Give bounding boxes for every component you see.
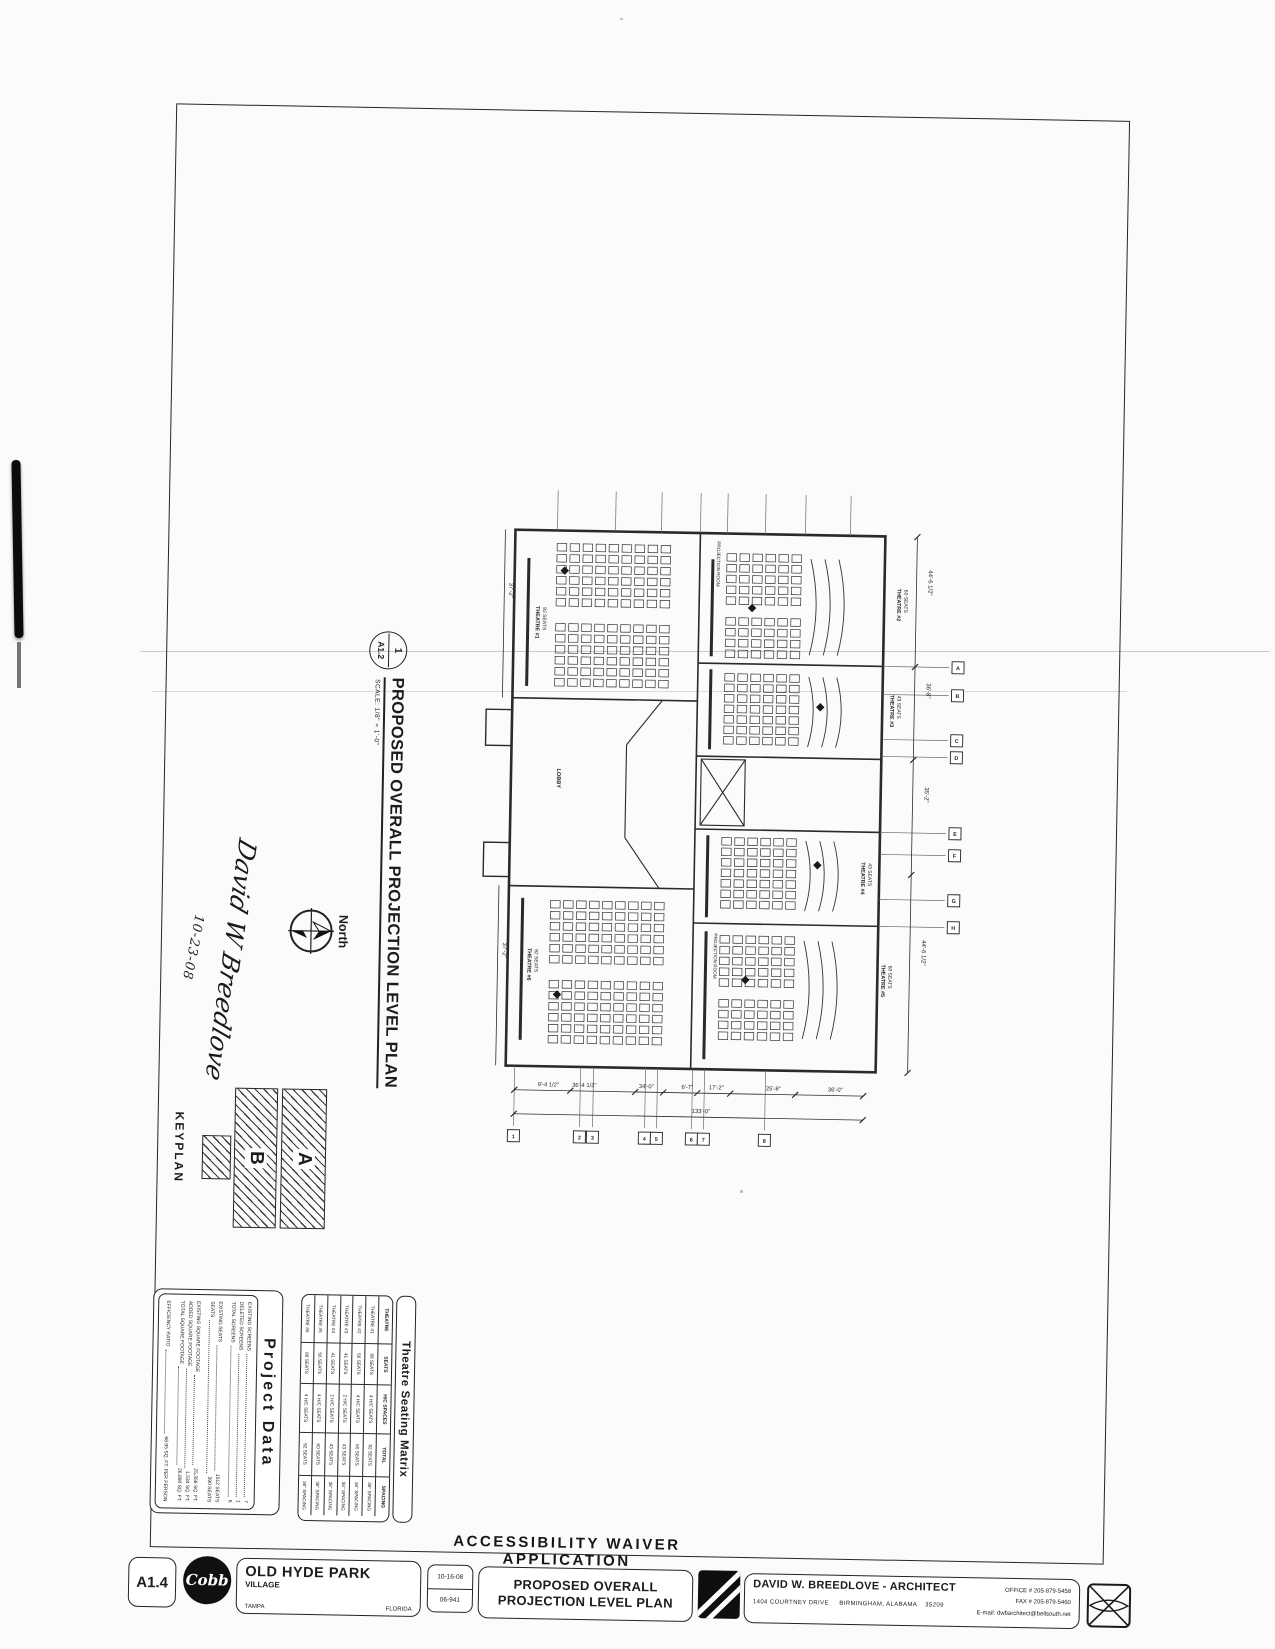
seat [732, 968, 742, 976]
seat [602, 923, 612, 931]
matrix-cell: 88 SEATS [301, 1342, 315, 1383]
seat [569, 577, 579, 585]
seat [766, 565, 776, 573]
seat [633, 658, 643, 666]
seat [783, 1022, 793, 1030]
seat [745, 968, 755, 976]
project-data-label: EFFICIENCY RATIO [164, 1300, 170, 1346]
cobb-logo-text: Cobb [186, 1571, 229, 1590]
keyplan-label: KEYPLAN [171, 1111, 187, 1203]
seat [569, 624, 579, 632]
seat [581, 668, 591, 676]
seat [787, 839, 797, 847]
seat [615, 935, 625, 943]
seat [747, 859, 757, 867]
seat [757, 1033, 767, 1041]
curved-seat-row [808, 677, 814, 747]
seat [582, 577, 592, 585]
email: E-mail: dwbarchitect@bellsouth.net [976, 1608, 1070, 1621]
seating-matrix-title: Theatre Seating Matrix [392, 1296, 416, 1523]
seat [601, 1003, 611, 1011]
seat [720, 946, 730, 954]
dim-line [908, 537, 918, 1073]
project-data-rows: EXISTING SCREENS7DELETED SCREENS1TOTAL S… [154, 1293, 258, 1510]
seat [633, 680, 643, 688]
client-sub: VILLAGE [245, 1580, 412, 1592]
seat [734, 859, 744, 867]
project-data-value: 25,356 SQ. FT. [191, 1468, 197, 1502]
seat [722, 848, 732, 856]
seat [734, 890, 744, 898]
seat [734, 880, 744, 888]
seat [654, 913, 664, 921]
seat [590, 901, 600, 909]
seat [575, 992, 585, 1000]
project-data-value: 26,890 SQ. FT. [175, 1468, 181, 1502]
seat [777, 651, 787, 659]
plan-text: G [952, 899, 956, 905]
seat [773, 880, 783, 888]
association-logo [1085, 1582, 1132, 1629]
sheet-content: 9'-4 1/2"36'-4 1/2"34'-0"6'-7"17'-2"25'-… [0, 0, 1275, 1649]
seat [576, 912, 586, 920]
seat [548, 1013, 558, 1021]
seat [750, 716, 760, 724]
seat [659, 680, 669, 688]
seat [760, 880, 770, 888]
seat [568, 679, 578, 687]
seat [600, 1036, 610, 1044]
seat [583, 555, 593, 563]
curved-seat-row [819, 841, 825, 911]
seat [737, 726, 747, 734]
seat [724, 705, 734, 713]
seat [726, 597, 736, 605]
seat [640, 982, 650, 990]
seat [771, 980, 781, 988]
dim-line [514, 1114, 863, 1120]
seat [647, 600, 657, 608]
seat [652, 1037, 662, 1045]
seat [752, 586, 762, 594]
project-data-label: DELETED SCREENS [237, 1302, 243, 1351]
seat [550, 911, 560, 919]
seat [648, 567, 658, 575]
seat [738, 684, 748, 692]
plan-text: H [951, 926, 955, 932]
seat [594, 657, 604, 665]
signature-date-wrap: 10-23-08 [206, 916, 207, 917]
seat [555, 645, 565, 653]
seat [720, 957, 730, 965]
seat [735, 848, 745, 856]
seat [603, 901, 613, 909]
seat [628, 957, 638, 965]
seat [661, 567, 671, 575]
plan-text: PROJECTION ROOM [712, 933, 718, 978]
seat [648, 545, 658, 553]
sheet-title-line2: PROJECTION LEVEL PLAN [498, 1593, 673, 1612]
curved-seat-row [836, 678, 842, 748]
matrix-cell: 4 H/C SEATS [300, 1383, 314, 1432]
project-data-label: SEATS [208, 1301, 214, 1317]
seat [734, 901, 744, 909]
seat [776, 727, 786, 735]
seat [732, 979, 742, 987]
seat [757, 1022, 767, 1030]
seat [613, 1015, 623, 1023]
dotted-leader [185, 1369, 188, 1468]
detail-bubble: 1 A1.2 [369, 631, 408, 670]
seat [774, 849, 784, 857]
seat [789, 696, 799, 704]
seat [724, 726, 734, 734]
grid-line [880, 854, 946, 855]
grid-line [882, 739, 948, 740]
seat [602, 912, 612, 920]
seat [582, 588, 592, 596]
seat [587, 1025, 597, 1033]
seat [748, 838, 758, 846]
dotted-leader [244, 1354, 248, 1497]
seat [732, 1011, 742, 1019]
seat [731, 1021, 741, 1029]
seat [607, 668, 617, 676]
seat [661, 556, 671, 564]
plan-text: 133'-0" [691, 1109, 710, 1115]
project-data-title: Project Data [254, 1291, 282, 1514]
seat [725, 674, 735, 682]
seat [646, 636, 656, 644]
seat [732, 1000, 742, 1008]
seat [751, 674, 761, 682]
curved-seat-row [833, 842, 839, 912]
seat [626, 1026, 636, 1034]
seat [548, 1035, 558, 1043]
dotted-leader [193, 1375, 196, 1465]
grid-line [657, 1068, 658, 1128]
grid-line [557, 490, 558, 530]
seat [641, 946, 651, 954]
seat [751, 685, 761, 693]
seat [581, 657, 591, 665]
seat [654, 924, 664, 932]
seat [587, 1014, 597, 1022]
curved-seat-row [809, 559, 817, 655]
seat [570, 566, 580, 574]
plan-text: 34'-0" [639, 1084, 654, 1090]
seat [628, 946, 638, 954]
seat [549, 1002, 559, 1010]
seat [576, 956, 586, 964]
seat [721, 900, 731, 908]
project-data-wrap: Project Data EXISTING SCREENS7DELETED SC… [149, 1288, 283, 1515]
grid-line [765, 494, 766, 534]
grid-line [704, 1069, 705, 1129]
seat [783, 1033, 793, 1041]
seat [750, 706, 760, 714]
seat [641, 924, 651, 932]
seat [614, 993, 624, 1001]
plan-text: A [956, 666, 960, 672]
plan-text: 6 [690, 1137, 693, 1143]
seat [555, 634, 565, 642]
exit-diamond-icon [816, 703, 824, 711]
dotted-leader [164, 1349, 167, 1433]
matrix-cell: 2 H/C SEATS [338, 1384, 352, 1433]
plan-text: 17'-2" [709, 1085, 724, 1091]
seat [641, 935, 651, 943]
seat [745, 1000, 755, 1008]
project-data-row: EXISTING SCREENS7 [243, 1302, 252, 1503]
plan-text: 36'-0" [828, 1087, 843, 1093]
seat [563, 956, 573, 964]
seat [576, 923, 586, 931]
seat [785, 937, 795, 945]
seat [628, 924, 638, 932]
seat [659, 636, 669, 644]
seat [600, 1014, 610, 1022]
seat [652, 1015, 662, 1023]
matrix-cell: 36" SPACING [324, 1475, 338, 1515]
seat [634, 589, 644, 597]
matrix-cell: 60 SEATS [312, 1432, 326, 1475]
seat [718, 1032, 728, 1040]
seat [648, 556, 658, 564]
seat [758, 1000, 768, 1008]
seat [784, 1001, 794, 1009]
seat [721, 869, 731, 877]
seat [594, 668, 604, 676]
seat [569, 599, 579, 607]
seat [602, 956, 612, 964]
project-data-value: 390 SEATS [205, 1476, 211, 1502]
seat [583, 566, 593, 574]
curved-seat-row [837, 560, 845, 656]
seat [735, 838, 745, 846]
seat [556, 576, 566, 584]
seat [752, 618, 762, 626]
matrix-cell: 56 SEATS [314, 1342, 328, 1383]
seat [635, 567, 645, 575]
architect-logo [698, 1570, 741, 1619]
seat [581, 646, 591, 654]
seat [574, 1036, 584, 1044]
seat [763, 695, 773, 703]
seat [745, 1011, 755, 1019]
seat [786, 870, 796, 878]
seat [588, 981, 598, 989]
seat [634, 578, 644, 586]
seat [620, 669, 630, 677]
matrix-cell: THEATRE #1 [366, 1296, 380, 1343]
seat [575, 981, 585, 989]
seat [564, 901, 574, 909]
project-data-value: 1512 SEATS [213, 1474, 219, 1503]
seat [763, 716, 773, 724]
seat [722, 838, 732, 846]
seat [760, 859, 770, 867]
grid-line [879, 899, 945, 900]
exit-diamond-icon [560, 566, 568, 574]
seat [758, 1011, 768, 1019]
seat [773, 901, 783, 909]
matrix-cell: THEATRE #3 [340, 1296, 354, 1343]
seat [747, 869, 757, 877]
plan-text: 37'-2" [501, 942, 507, 957]
seat [790, 685, 800, 693]
seat [646, 669, 656, 677]
seat [562, 981, 572, 989]
seat [635, 545, 645, 553]
seat [724, 737, 734, 745]
seat [752, 597, 762, 605]
seat [789, 738, 799, 746]
date-job-box: 10-16-08 06-941 [427, 1564, 474, 1613]
seat [569, 588, 579, 596]
seat [589, 934, 599, 942]
seat [784, 1011, 794, 1019]
seat [615, 946, 625, 954]
seat [786, 902, 796, 910]
seat [734, 869, 744, 877]
seat [562, 992, 572, 1000]
seat [791, 630, 801, 638]
seat [582, 624, 592, 632]
seat [739, 618, 749, 626]
seat [550, 955, 560, 963]
seat [747, 901, 757, 909]
matrix-cell: 92 SEATS [299, 1432, 313, 1475]
seat [595, 599, 605, 607]
seat [639, 1026, 649, 1034]
seat [620, 680, 630, 688]
seat [594, 646, 604, 654]
curved-seat-row [805, 841, 811, 911]
seat [609, 566, 619, 574]
plan-text: 44'-6 1/2" [926, 570, 932, 595]
seat [583, 544, 593, 552]
seat [608, 599, 618, 607]
seat [614, 1004, 624, 1012]
seat [622, 567, 632, 575]
plan-text: 7 [702, 1138, 705, 1144]
seat [771, 1000, 781, 1008]
detail-sheet: A1.2 [373, 641, 388, 659]
seat [615, 924, 625, 932]
seat [789, 727, 799, 735]
seat [595, 577, 605, 585]
seat [787, 849, 797, 857]
seat [764, 674, 774, 682]
plan-text: C [955, 739, 959, 745]
seat [784, 969, 794, 977]
dotted-leader [236, 1353, 240, 1497]
seat [738, 650, 748, 658]
project-data-box: Project Data EXISTING SCREENS7DELETED SC… [149, 1288, 283, 1515]
plan-text: THEATRE #4 [859, 862, 866, 895]
plan-text: 25'-8" [766, 1086, 781, 1092]
plan-text: 43 SEATS [866, 863, 872, 887]
plan-text: 36'-8" [924, 683, 930, 698]
seat [587, 1036, 597, 1044]
seat [785, 947, 795, 955]
seat [647, 589, 657, 597]
seat [589, 956, 599, 964]
seat [621, 600, 631, 608]
seat [733, 936, 743, 944]
matrix-cell: 4 H/C SEATS [351, 1384, 365, 1433]
seat [548, 1024, 558, 1032]
seat [746, 958, 756, 966]
curved-seat-row [802, 941, 810, 1039]
seat [607, 646, 617, 654]
plan-text: PROJECTION ROOM [715, 541, 721, 586]
seat [721, 890, 731, 898]
seat [776, 706, 786, 714]
matrix-cell: 92 SEATS [363, 1433, 377, 1476]
seat [633, 647, 643, 655]
seat [647, 578, 657, 586]
seat [776, 716, 786, 724]
seat [758, 969, 768, 977]
seat [750, 737, 760, 745]
matrix-cell: 4 H/C SEATS [313, 1383, 327, 1432]
seat [581, 635, 591, 643]
seat [761, 849, 771, 857]
logo-stripe [698, 1581, 741, 1619]
matrix-cell: 36" SPACING [350, 1476, 364, 1516]
seat [621, 578, 631, 586]
curved-seat-row [816, 941, 824, 1039]
seat [763, 706, 773, 714]
seat [642, 902, 652, 910]
seat [750, 695, 760, 703]
seat [576, 945, 586, 953]
project-data-label: EXISTING SQUARE FOOTAGE [193, 1301, 200, 1372]
seat [602, 934, 612, 942]
matrix-cell: THEATRE #5 [314, 1295, 328, 1342]
grid-line [645, 1068, 646, 1128]
seat [653, 1004, 663, 1012]
matrix-cell: 36" SPACING [337, 1476, 351, 1516]
seat [556, 623, 566, 631]
plan-text: 5 [655, 1137, 658, 1143]
seat [588, 992, 598, 1000]
seat [765, 587, 775, 595]
seat [639, 1015, 649, 1023]
seat [600, 1025, 610, 1033]
seat [740, 554, 750, 562]
plan-text: 1 [512, 1134, 515, 1140]
seat [659, 647, 669, 655]
project-data-label: ADDED SQUARE FOOTAGE [186, 1301, 193, 1367]
seat [744, 1032, 754, 1040]
seat [620, 647, 630, 655]
project-data-value: 68.95 SQ. FT. PER PERSON [161, 1436, 168, 1501]
dotted-leader [177, 1367, 180, 1465]
seating-matrix-wrap: Theatre Seating Matrix THEATRESEATSH/C S… [297, 1294, 416, 1523]
seat [660, 578, 670, 586]
client-box: OLD HYDE PARK VILLAGE TAMPA FLORIDA [236, 1558, 422, 1617]
job-number: 06-941 [428, 1589, 472, 1612]
architect-zip: 35209 [925, 1602, 944, 1608]
seat [791, 619, 801, 627]
seat [774, 838, 784, 846]
seat [751, 640, 761, 648]
seat [733, 957, 743, 965]
seat [771, 1011, 781, 1019]
